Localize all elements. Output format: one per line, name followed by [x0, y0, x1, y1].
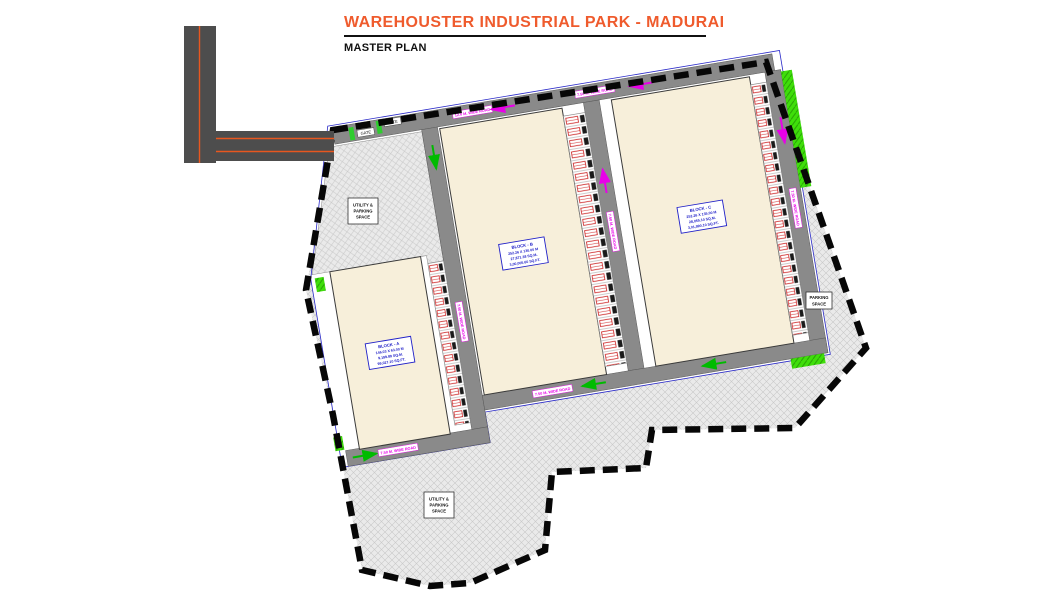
svg-text:PARKING: PARKING — [430, 503, 449, 508]
svg-text:UTILITY &: UTILITY & — [429, 497, 449, 502]
svg-text:UTILITY &: UTILITY & — [353, 203, 373, 208]
external-road-horizontal — [216, 131, 334, 161]
page-subtitle: MASTER PLAN — [344, 42, 427, 54]
svg-text:PARKING: PARKING — [810, 295, 829, 300]
parking-label-northwest: UTILITY & PARKING SPACE — [348, 198, 378, 224]
svg-text:SPACE: SPACE — [812, 302, 826, 307]
master-plan-page: WAREHOUSTER INDUSTRIAL PARK - MADURAI MA… — [0, 0, 1047, 600]
title-underline — [344, 35, 706, 37]
svg-text:SPACE: SPACE — [432, 509, 446, 514]
parking-label-south: UTILITY & PARKING SPACE — [424, 492, 454, 518]
parking-label-east: PARKING SPACE — [806, 292, 832, 309]
svg-text:SPACE: SPACE — [356, 215, 370, 220]
site-plan-drawing: BLOCK - A 146.03 X 63.00 M 9,199.89 SQ.M… — [0, 0, 1047, 600]
svg-text:PARKING: PARKING — [354, 209, 373, 214]
page-title: WAREHOUSTER INDUSTRIAL PARK - MADURAI — [344, 14, 724, 32]
